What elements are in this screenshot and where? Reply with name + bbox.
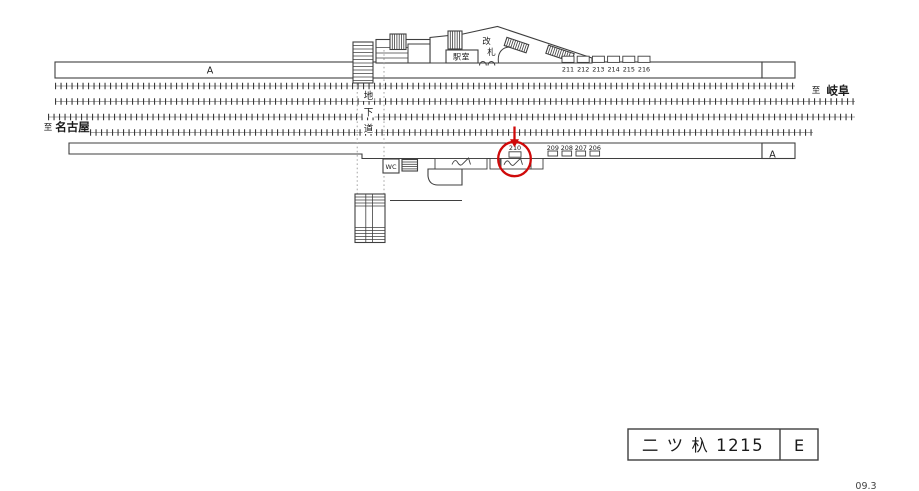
direction-gifu: 至 岐阜 (812, 84, 850, 98)
direction-left-prefix: 至 (44, 123, 53, 133)
shelter-mark-lower: A (769, 150, 776, 161)
ad-board-number-209: 209 (547, 144, 559, 152)
station-title-text: 二 ツ 杁 1215 (642, 436, 764, 455)
ad-board-box-216 (638, 56, 650, 62)
station-room-stairs (448, 31, 462, 49)
underpass-label-char: 下 (364, 108, 374, 119)
station-layout-page: 駅室 改 札 WC (0, 0, 919, 491)
ad-board-box-211 (562, 56, 574, 62)
ad-board-number-208: 208 (561, 144, 573, 152)
south-underpass-stairs (355, 194, 385, 243)
ad-board-box-215 (623, 56, 635, 62)
platform-building (428, 169, 462, 185)
underpass-label-char: 地 (364, 90, 374, 102)
ad-board-number-216: 216 (638, 66, 650, 74)
bench-kiosk-row (435, 158, 543, 169)
ad-board-box-213 (592, 56, 604, 62)
wc-label: WC (386, 163, 397, 171)
north-underpass-stairs (353, 42, 373, 83)
ad-board-number-214: 214 (607, 66, 619, 74)
shelter-mark-upper: A (207, 66, 214, 77)
ad-board-number-207: 207 (575, 144, 587, 152)
ad-board-box-214 (608, 56, 620, 62)
lower-platform (69, 143, 795, 159)
direction-right-prefix: 至 (812, 86, 821, 96)
ad-board-number-212: 212 (577, 66, 589, 74)
ad-board-number-213: 213 (592, 66, 604, 74)
direction-left-name: 名古屋 (55, 120, 90, 134)
upper-platform (55, 62, 795, 78)
annex-stairs (390, 34, 406, 50)
ad-board-number-206: 206 (589, 144, 601, 152)
ad-board-box-210 (509, 152, 521, 157)
station-room-label: 駅室 (453, 52, 470, 62)
ad-board-number-211: 211 (562, 66, 574, 74)
underpass-label: 地下道 (363, 90, 375, 136)
direction-right-name: 岐阜 (827, 84, 850, 98)
edition-note: 09.3 (855, 481, 876, 491)
direction-nagoya: 至 名古屋 (44, 120, 91, 134)
underpass-label-char: 道 (364, 123, 374, 135)
ad-board-number-215: 215 (623, 66, 635, 74)
ticket-gate-label-char-1: 改 (482, 36, 491, 47)
ad-board-box-212 (577, 56, 589, 62)
lower-platform-stairs (402, 160, 418, 172)
title-box: 二 ツ 杁 1215 E (628, 429, 818, 460)
ticket-gate-label-char-2: 札 (487, 47, 496, 58)
station-layout-diagram: 駅室 改 札 WC (0, 0, 919, 491)
station-title-code: E (794, 436, 804, 455)
